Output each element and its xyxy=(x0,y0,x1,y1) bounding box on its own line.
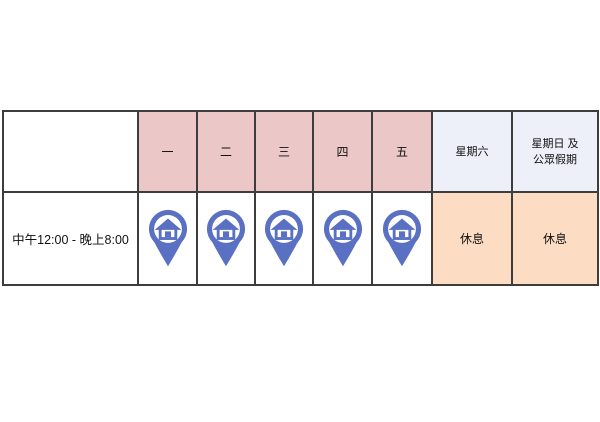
header-friday: 五 xyxy=(372,111,432,192)
home-location-pin-icon xyxy=(322,209,364,269)
header-sunday-line2: 公眾假期 xyxy=(533,154,577,166)
empty-corner-cell xyxy=(3,111,138,192)
opening-hours-page: 一 二 三 四 五 星期六 星期日 及 公眾假期 中午12:00 - 晚上8:0… xyxy=(0,0,600,422)
header-sunday-line1: 星期日 及 xyxy=(531,138,578,150)
header-monday: 一 xyxy=(138,111,197,192)
header-row: 一 二 三 四 五 星期六 星期日 及 公眾假期 xyxy=(3,111,598,192)
home-location-pin-icon xyxy=(205,209,247,269)
closed-cell-sunday-holiday: 休息 xyxy=(512,192,598,285)
time-range-cell: 中午12:00 - 晚上8:00 xyxy=(3,192,138,285)
header-thursday: 四 xyxy=(313,111,372,192)
header-saturday: 星期六 xyxy=(432,111,512,192)
open-cell-monday xyxy=(138,192,197,285)
hours-row: 中午12:00 - 晚上8:00 xyxy=(3,192,598,285)
closed-cell-saturday: 休息 xyxy=(432,192,512,285)
home-location-pin-icon xyxy=(147,209,189,269)
open-cell-thursday xyxy=(313,192,372,285)
header-wednesday: 三 xyxy=(255,111,313,192)
home-location-pin-icon xyxy=(381,209,423,269)
open-cell-wednesday xyxy=(255,192,313,285)
header-sunday-holiday: 星期日 及 公眾假期 xyxy=(512,111,598,192)
open-cell-friday xyxy=(372,192,432,285)
header-tuesday: 二 xyxy=(197,111,255,192)
opening-hours-table: 一 二 三 四 五 星期六 星期日 及 公眾假期 中午12:00 - 晚上8:0… xyxy=(2,110,599,286)
open-cell-tuesday xyxy=(197,192,255,285)
home-location-pin-icon xyxy=(263,209,305,269)
